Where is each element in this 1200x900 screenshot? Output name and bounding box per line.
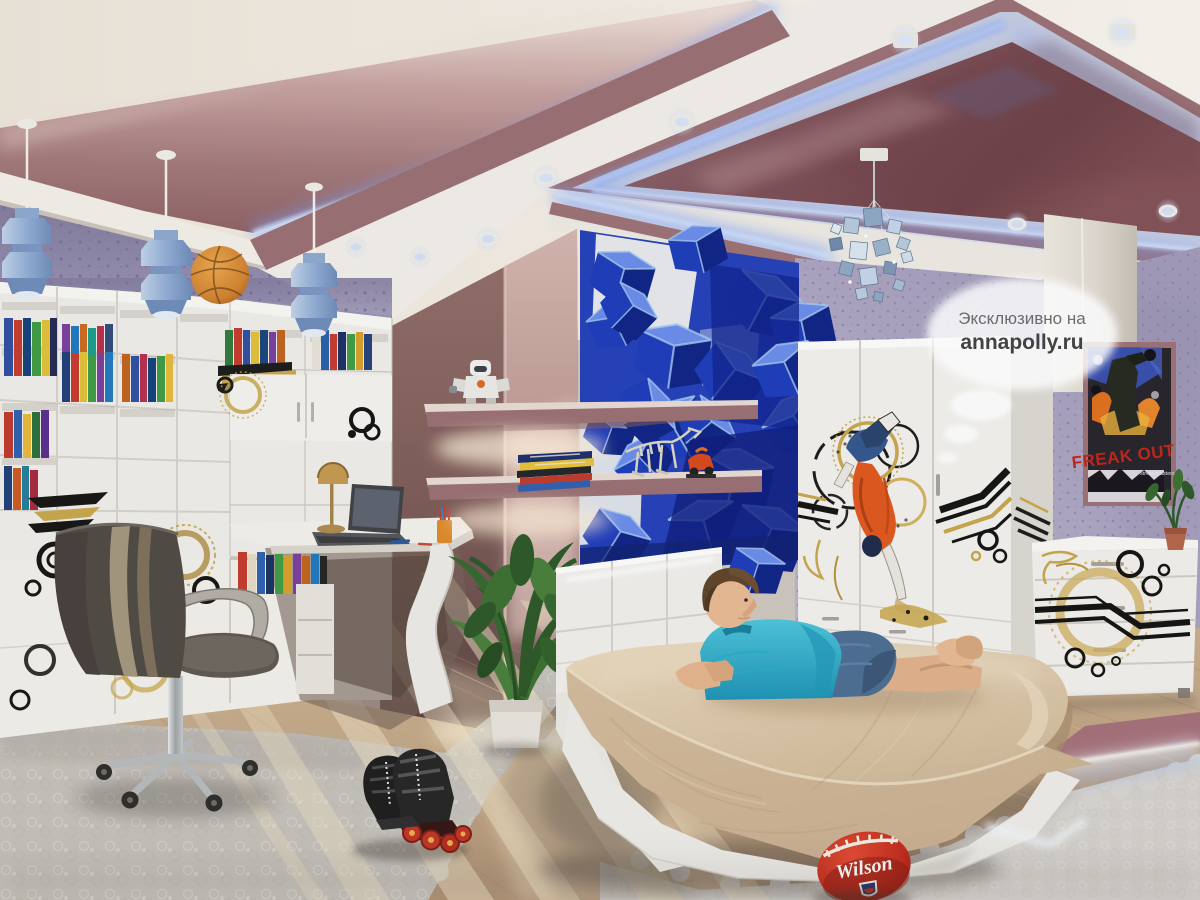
svg-text:Эксклюзивно на: Эксклюзивно на — [958, 309, 1086, 328]
svg-text:annapolly.ru: annapolly.ru — [960, 331, 1083, 354]
